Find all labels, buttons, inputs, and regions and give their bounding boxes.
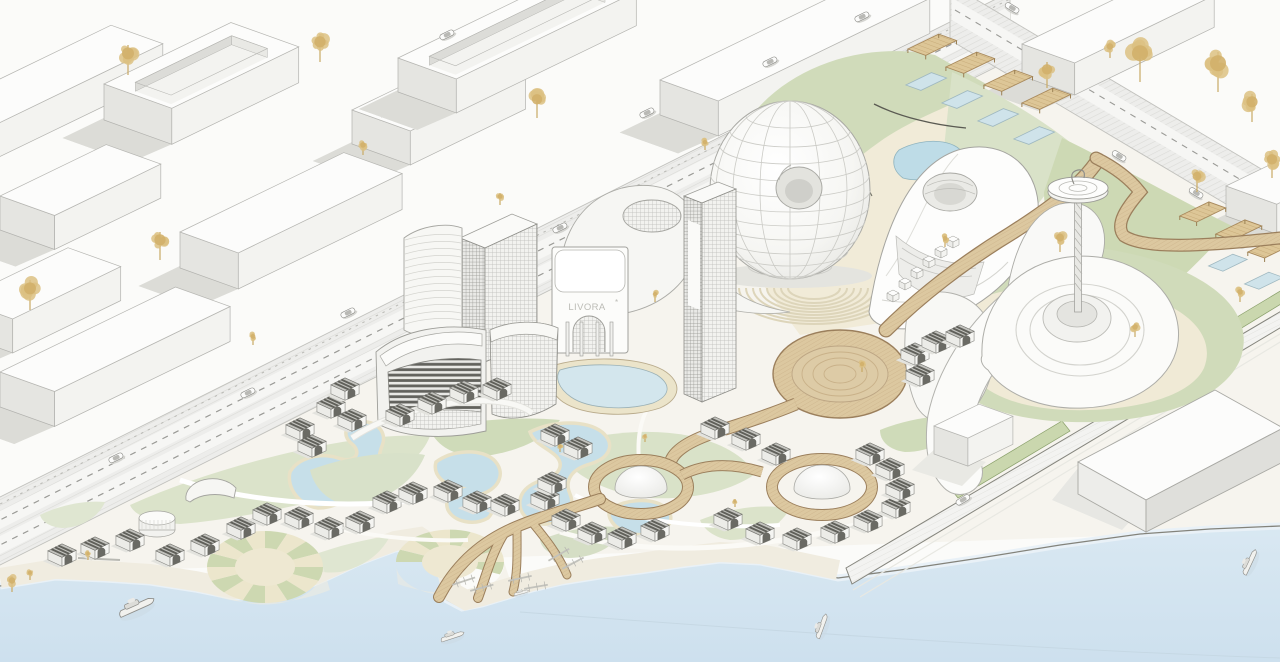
svg-text:LIVORA: LIVORA [568, 302, 606, 313]
svg-text:*: * [615, 298, 618, 307]
